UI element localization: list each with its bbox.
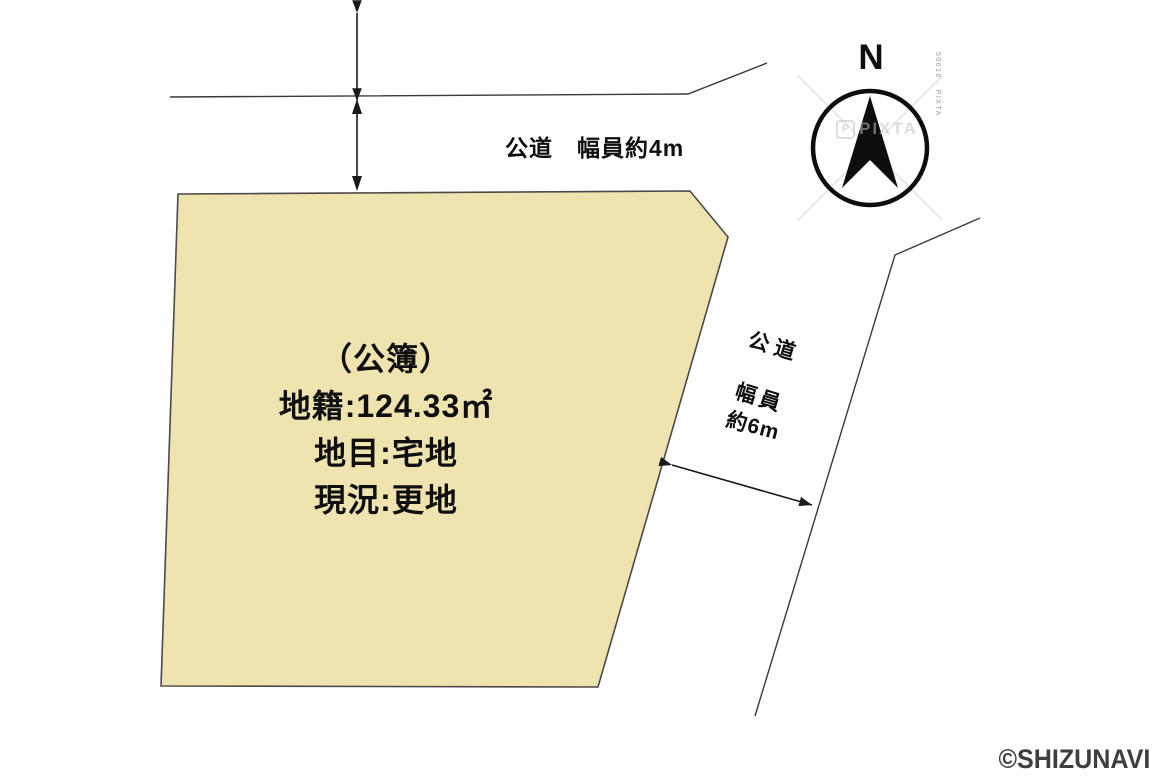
- right-road-width-arrow: [672, 465, 812, 505]
- site-plan-canvas: P PIXTA 50616 - PIXTA N 公道 幅員約4m （公簿） 地籍…: [0, 0, 1157, 781]
- pixta-logo-icon: P: [836, 120, 855, 139]
- parcel-info-block: （公簿） 地籍:124.33㎡ 地目:宅地 現況:更地: [136, 336, 636, 524]
- compass-north-label: N: [850, 38, 892, 78]
- parcel-current-state: 現況:更地: [136, 477, 636, 524]
- pixta-watermark-text: PIXTA: [859, 119, 918, 139]
- top-road-edge-line: [170, 63, 767, 97]
- right-road-edge-line: [755, 218, 980, 716]
- parcel-register-type: （公簿）: [136, 336, 636, 383]
- watermark-side-code: 50616 - PIXTA: [934, 52, 941, 117]
- copyright-text: ©SHIZUNAVI: [998, 744, 1150, 775]
- parcel-land-category: 地目:宅地: [136, 430, 636, 477]
- top-road-width-arrowhead-down: [352, 176, 362, 191]
- top-road-label: 公道 幅員約4m: [505, 129, 684, 163]
- north-arrow-icon: [842, 96, 898, 188]
- top-road-width-arrowhead-up: [352, 99, 362, 114]
- pixta-watermark: P PIXTA: [836, 119, 918, 139]
- parcel-land-area: 地籍:124.33㎡: [136, 383, 636, 430]
